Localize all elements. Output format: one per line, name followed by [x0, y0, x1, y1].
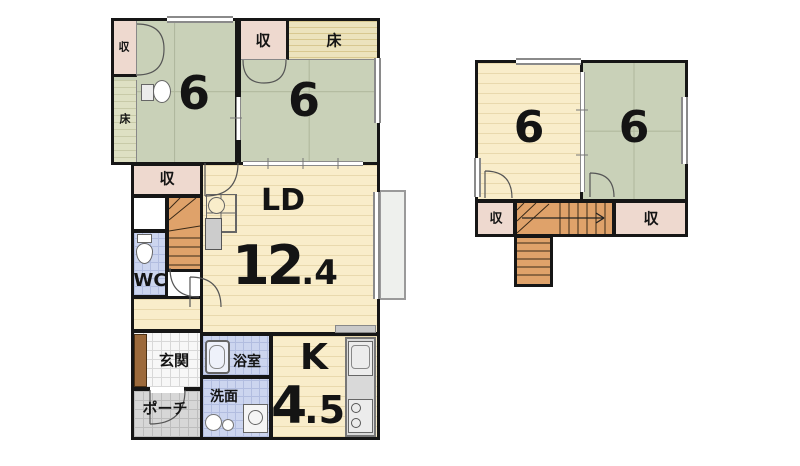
- laundry-basin-small-icon: [222, 419, 234, 431]
- toilet-tank-icon: [137, 234, 152, 243]
- hallway: [131, 296, 203, 332]
- ld-area-label: 12.4: [232, 239, 338, 293]
- area-label-jp-right: 6: [288, 77, 318, 123]
- shoe-cabinet: [134, 334, 147, 387]
- floor-plan: 6 収 床 6 収 床 収 WC LD 12.4 玄関 ポーチ 浴室 洗面 K …: [0, 0, 800, 466]
- kitchen-sink-basin-icon: [351, 345, 370, 369]
- closet-2f-left-label: 収: [489, 213, 502, 226]
- cabinet-gray-icon: [205, 218, 222, 250]
- window-top-left-room: [167, 16, 233, 23]
- bathtub-inner-icon: [209, 345, 225, 369]
- wc-label: WC: [133, 272, 166, 290]
- sliding-door-between-jp-rooms: [236, 97, 241, 140]
- bath-label: 浴室: [233, 355, 261, 369]
- kitchen-area-dec: .5: [304, 388, 345, 432]
- counter-hatch: [335, 325, 376, 333]
- hall-closet-label: 収: [159, 172, 174, 187]
- tokonoma-label-left: 床: [120, 114, 131, 125]
- kitchen-label: K: [300, 340, 328, 376]
- tokonoma-label-top: 床: [326, 34, 341, 49]
- deck: [379, 190, 406, 300]
- ld-area-dec: .4: [301, 253, 338, 293]
- staircase-2f-lower: [514, 235, 553, 287]
- area-label-2f-west: 6: [514, 106, 543, 150]
- entrance-door-gap: [150, 387, 184, 393]
- window-ld-right: [373, 192, 380, 299]
- ld-label: LD: [261, 186, 305, 216]
- window-right-jp-room: [374, 58, 381, 123]
- vanity-mirror-icon: [153, 80, 171, 103]
- washing-machine-drum-icon: [248, 410, 263, 425]
- sliding-door-between-2f-rooms: [580, 72, 585, 192]
- laundry-basin-icon: [205, 414, 222, 431]
- stove-burner-top-icon: [351, 403, 361, 413]
- closet-label-top: 収: [255, 34, 270, 49]
- staircase-1f: [166, 195, 203, 272]
- kitchen-area-label: 4.5: [271, 380, 345, 432]
- sliding-door-jp-ld: [243, 161, 363, 166]
- window-left-2f-west: [474, 158, 481, 197]
- closet-2f-right-label: 収: [643, 212, 658, 227]
- window-top-2f-west: [516, 58, 581, 65]
- window-right-2f-jp: [681, 97, 688, 164]
- storage-room: [131, 195, 168, 232]
- area-label-jp-left: 6: [178, 70, 208, 116]
- closet-label-northwest: 収: [119, 42, 130, 53]
- staircase-2f-upper: [514, 200, 615, 237]
- stove-burner-bottom-icon: [351, 418, 361, 428]
- stool-icon: [208, 197, 225, 214]
- area-label-2f-jp: 6: [619, 106, 648, 150]
- washroom-label: 洗面: [210, 390, 238, 404]
- kitchen-area-int: 4: [271, 376, 304, 436]
- entrance-label: 玄関: [159, 354, 189, 369]
- ld-area-int: 12: [232, 234, 301, 297]
- porch-label: ポーチ: [142, 402, 187, 417]
